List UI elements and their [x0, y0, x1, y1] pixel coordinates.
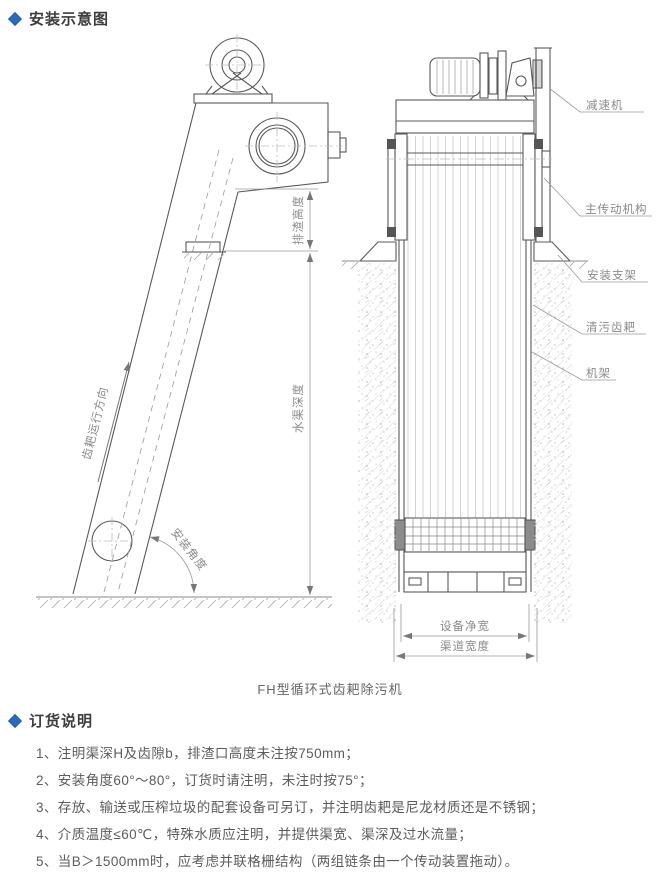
order-note-5: 5、当B＞1500mm时，应考虑并联格栅结构（两组链条由一个传动装置拖动）。 — [36, 848, 646, 875]
label-main-drive: 主传动机构 — [585, 202, 648, 216]
dim-channel-width: 渠道宽度 — [440, 639, 490, 653]
order-note-3: 3、存放、输送或压榨垃圾的配套设备可另订，并注明齿耙是尼龙材质还是不锈钢； — [36, 794, 646, 821]
label-mount-bracket: 安装支架 — [587, 268, 637, 282]
section-title-install: 安装示意图 — [29, 8, 109, 29]
section-title-order: 订货说明 — [29, 710, 93, 731]
order-note-1: 1、注明渠深H及齿隙b，排渣口高度未注按750mm； — [36, 740, 646, 767]
order-note-2: 2、安装角度60°～80°，订货时请注明，未注时按75°； — [36, 767, 646, 794]
side-view-ground — [36, 253, 332, 608]
order-notes-list: 1、注明渠深H及齿隙b，排渣口高度未注按750mm； 2、安装角度60°～80°… — [36, 740, 646, 875]
installation-diagram: 减速机 主传动机构 安装支架 清污齿耙 机架 排渣高度 水渠深度 齿耙运行方向 … — [0, 30, 660, 678]
dim-discharge-height: 排渣高度 — [291, 195, 305, 245]
installation-diagram-svg: 减速机 主传动机构 安装支架 清污齿耙 机架 排渣高度 水渠深度 齿耙运行方向 … — [0, 30, 660, 678]
section-header-install: 安装示意图 — [10, 8, 109, 29]
label-reducer: 减速机 — [586, 98, 624, 112]
dim-equipment-net-width: 设备净宽 — [440, 619, 490, 633]
diamond-bullet-icon — [8, 11, 22, 25]
section-header-order: 订货说明 — [10, 710, 93, 731]
label-frame: 机架 — [586, 366, 611, 380]
diagram-caption: FH型循环式齿耙除污机 — [0, 679, 660, 698]
side-view — [73, 38, 346, 594]
label-install-angle: 安装角度 — [168, 526, 210, 574]
diamond-bullet-icon — [8, 713, 22, 727]
chain-path-dashed — [104, 150, 233, 592]
order-note-4: 4、介质温度≤60℃，特殊水质应注明，并提供渠宽、渠深及过水流量； — [36, 821, 646, 848]
label-cleaning-rake: 清污齿耙 — [586, 321, 636, 334]
side-view-centerlines — [88, 34, 342, 566]
dim-channel-depth: 水渠深度 — [291, 383, 305, 433]
